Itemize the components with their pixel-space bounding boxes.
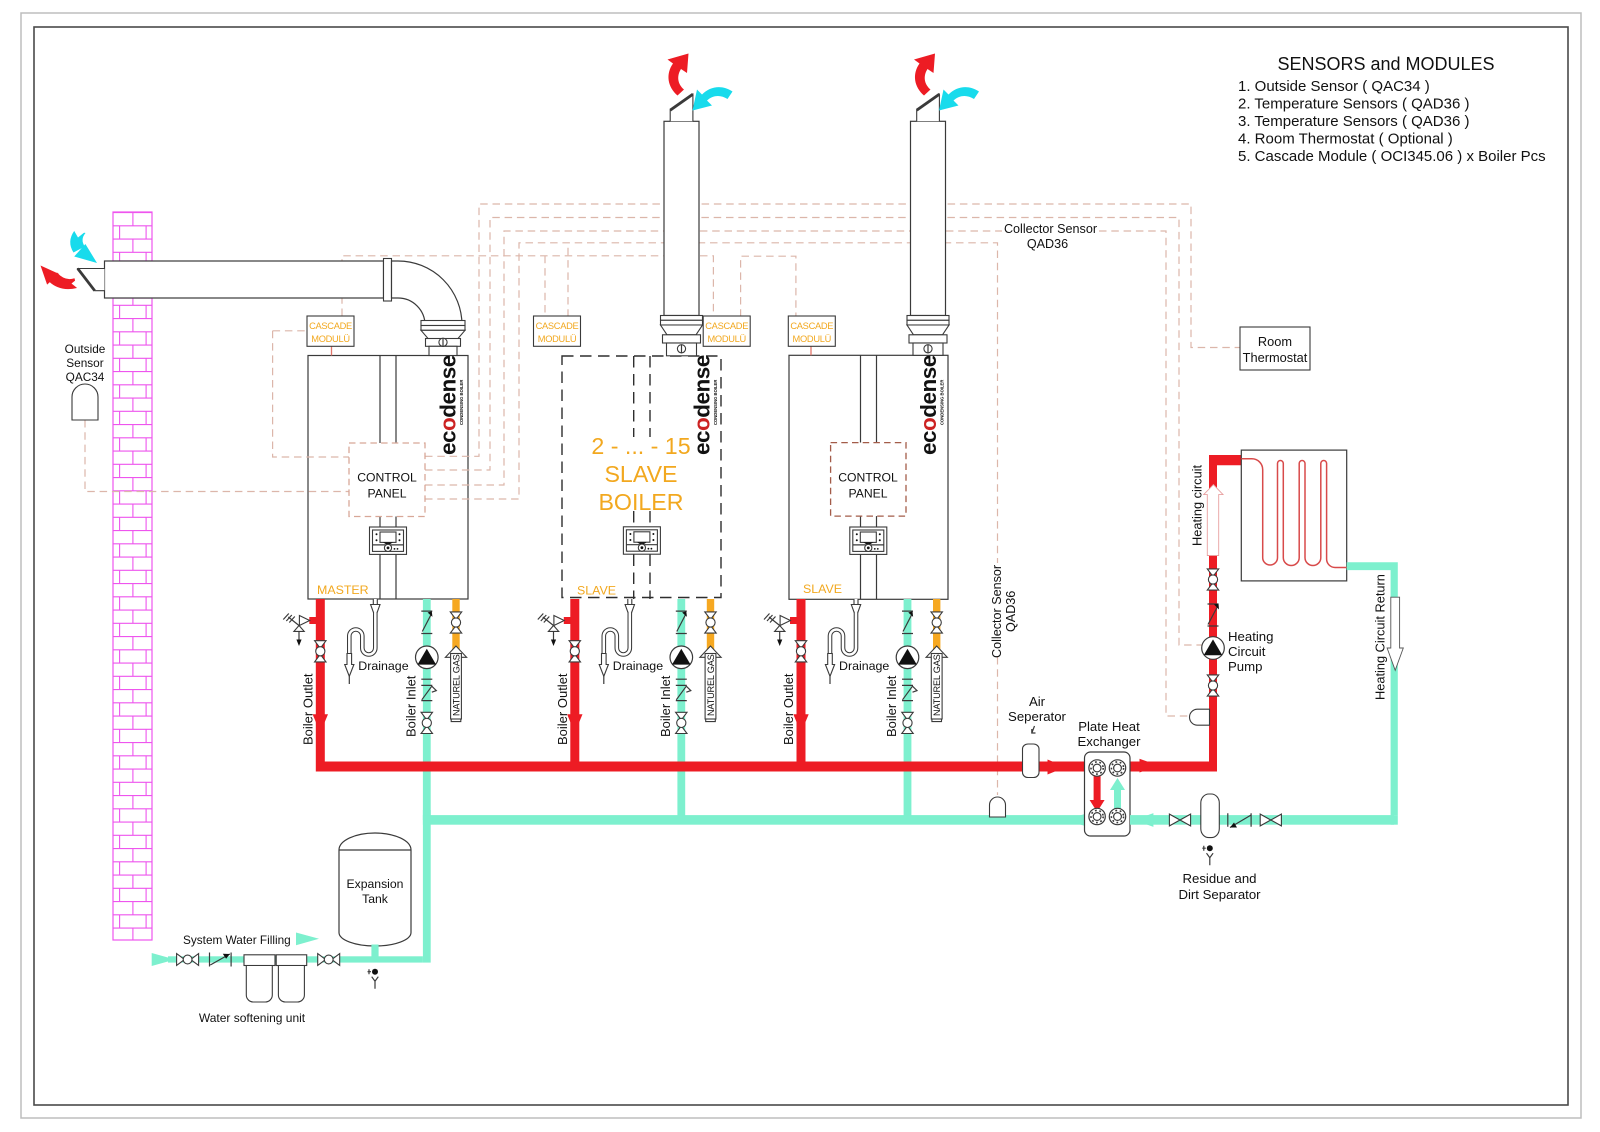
svg-text:System Water Filling: System Water Filling <box>183 933 291 947</box>
svg-text:ecodense: ecodense <box>916 355 941 455</box>
svg-text:Circuit: Circuit <box>1228 644 1266 659</box>
svg-text:PANEL: PANEL <box>367 487 406 501</box>
svg-text:Plate Heat: Plate Heat <box>1078 719 1140 734</box>
svg-text:MASTER: MASTER <box>317 583 369 597</box>
svg-text:CONTROL: CONTROL <box>357 471 417 485</box>
svg-text:CASCADE: CASCADE <box>536 321 579 331</box>
svg-text:Heating circuit: Heating circuit <box>1190 464 1205 546</box>
svg-text:Exchanger: Exchanger <box>1077 734 1141 749</box>
svg-text:CASCADE: CASCADE <box>790 321 833 331</box>
svg-text:MODULÜ: MODULÜ <box>311 334 350 344</box>
svg-text:SLAVE: SLAVE <box>803 582 842 596</box>
svg-text:QAC34: QAC34 <box>66 370 105 384</box>
svg-text:Outside: Outside <box>65 342 106 356</box>
svg-text:Tank: Tank <box>362 892 389 906</box>
svg-text:CASCADE: CASCADE <box>309 321 352 331</box>
svg-text:Water softening unit: Water softening unit <box>199 1011 306 1025</box>
svg-text:Collector Sensor: Collector Sensor <box>1004 222 1097 236</box>
svg-text:3. Temperature Sensors ( QAD36: 3. Temperature Sensors ( QAD36 ) <box>1238 113 1470 130</box>
svg-text:SLAVE: SLAVE <box>577 584 616 598</box>
svg-text:CASCADE: CASCADE <box>705 321 748 331</box>
svg-text:Room: Room <box>1258 334 1292 349</box>
svg-text:SENSORS and MODULES: SENSORS and MODULES <box>1277 54 1494 74</box>
svg-text:Sensor: Sensor <box>66 356 103 370</box>
svg-text:2 - ... - 15: 2 - ... - 15 <box>591 433 690 459</box>
svg-text:Air: Air <box>1029 694 1046 709</box>
svg-text:ecodense: ecodense <box>436 355 461 455</box>
svg-text:MODULÜ: MODULÜ <box>707 334 746 344</box>
svg-text:Pump: Pump <box>1228 659 1262 674</box>
svg-text:BOILER: BOILER <box>598 489 683 515</box>
svg-text:Boiler Inlet: Boiler Inlet <box>403 675 418 737</box>
svg-text:4. Room Thermostat ( Optional: 4. Room Thermostat ( Optional ) <box>1238 131 1453 148</box>
svg-text:Expansion: Expansion <box>347 877 404 891</box>
svg-text:Heating: Heating <box>1228 629 1273 644</box>
svg-text:Seperator: Seperator <box>1008 709 1067 724</box>
svg-text:ecodense: ecodense <box>690 355 715 455</box>
svg-text:Drainage: Drainage <box>358 659 408 673</box>
svg-text:5. Cascade Module ( OCI345.06: 5. Cascade Module ( OCI345.06 ) x Boiler… <box>1238 148 1546 165</box>
svg-text:Thermostat: Thermostat <box>1243 350 1308 365</box>
svg-text:PANEL: PANEL <box>848 487 887 501</box>
svg-text:MODULÜ: MODULÜ <box>538 334 577 344</box>
svg-text:CONTROL: CONTROL <box>838 471 898 485</box>
svg-text:Boiler Outlet: Boiler Outlet <box>300 673 315 745</box>
svg-text:2. Temperature Sensors ( QAD36: 2. Temperature Sensors ( QAD36 ) <box>1238 96 1470 113</box>
svg-text:NATUREL GAS: NATUREL GAS <box>451 654 461 716</box>
svg-text:Heating Circuit Return: Heating Circuit Return <box>1373 574 1388 700</box>
svg-text:CONDENSING BOILER: CONDENSING BOILER <box>459 380 464 425</box>
svg-text:Dirt Separator: Dirt Separator <box>1178 887 1261 902</box>
svg-text:Residue and: Residue and <box>1182 871 1256 886</box>
svg-text:Collector Sensor: Collector Sensor <box>990 565 1004 658</box>
svg-text:SLAVE: SLAVE <box>604 461 677 487</box>
svg-text:MODULÜ: MODULÜ <box>793 334 832 344</box>
svg-text:1. Outside Sensor ( QAC34 ): 1. Outside Sensor ( QAC34 ) <box>1238 78 1430 95</box>
svg-text:CONDENSING BOILER: CONDENSING BOILER <box>940 380 945 425</box>
svg-text:QAD36: QAD36 <box>1027 237 1068 251</box>
svg-text:CONDENSING BOILER: CONDENSING BOILER <box>713 380 718 425</box>
svg-text:QAD36: QAD36 <box>1004 591 1018 632</box>
